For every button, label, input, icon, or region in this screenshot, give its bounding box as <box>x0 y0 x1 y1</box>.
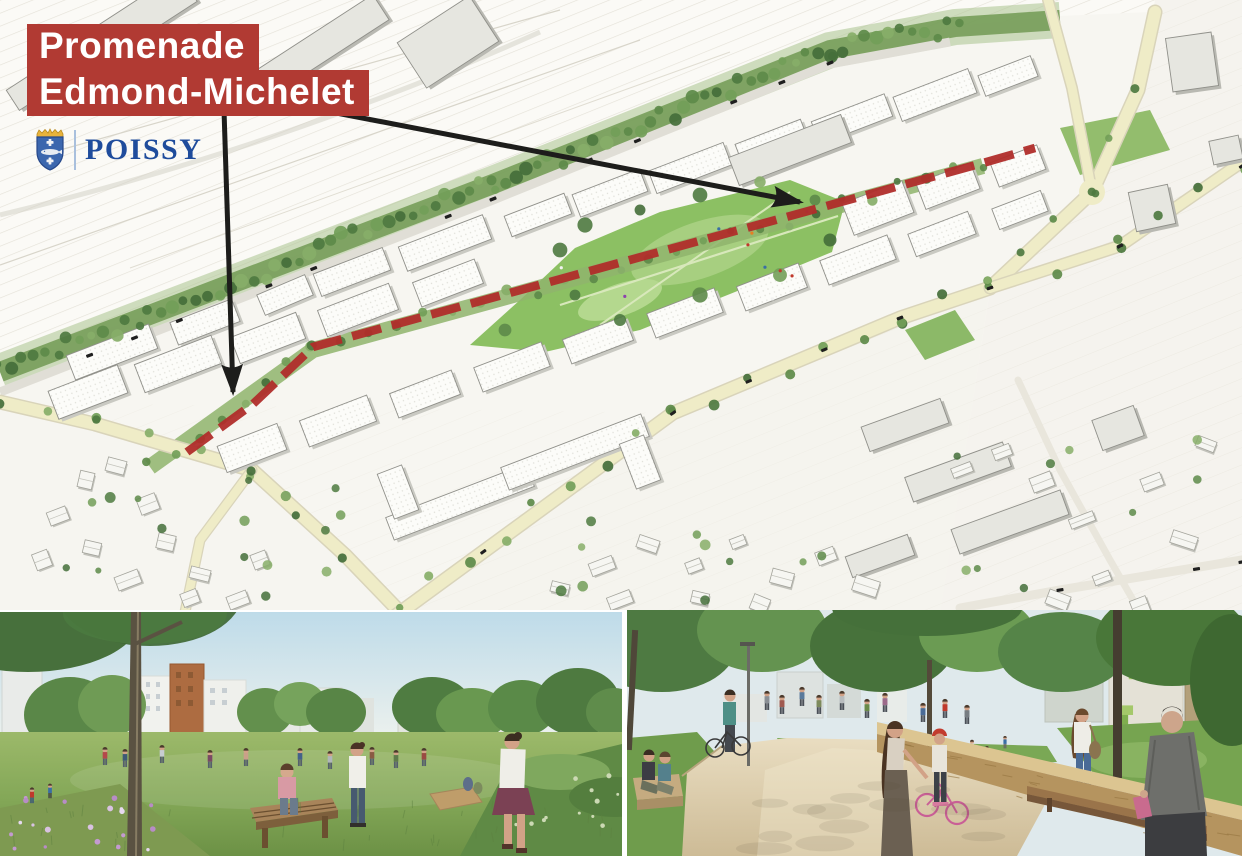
title-line-1: Promenade <box>27 24 259 70</box>
title-line-2: Edmond-Michelet <box>27 70 369 116</box>
logo-divider <box>74 130 76 170</box>
logo-wordmark: POISSY <box>85 135 202 165</box>
title-label: Promenade Edmond-Michelet <box>27 24 369 116</box>
poissy-logo: POISSY <box>34 128 202 172</box>
page: Promenade Edmond-Michelet POISSY <box>0 0 1242 856</box>
rendering-photos <box>0 610 1242 856</box>
photo-promenade-rendering <box>627 610 1242 856</box>
poissy-crest-icon <box>34 128 66 172</box>
photo-park-rendering <box>0 612 622 856</box>
